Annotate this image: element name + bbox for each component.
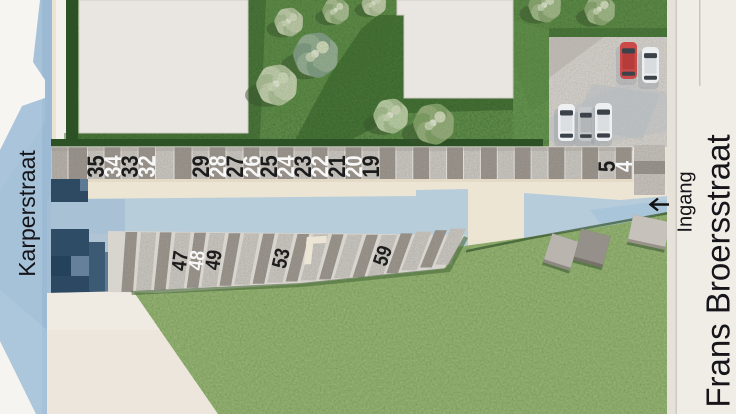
svg-text:Karperstraat: Karperstraat xyxy=(14,150,40,277)
svg-text:Frans Broersstraat: Frans Broersstraat xyxy=(700,134,736,407)
svg-text:Ingang: Ingang xyxy=(675,171,697,232)
svg-text:4: 4 xyxy=(610,160,637,172)
